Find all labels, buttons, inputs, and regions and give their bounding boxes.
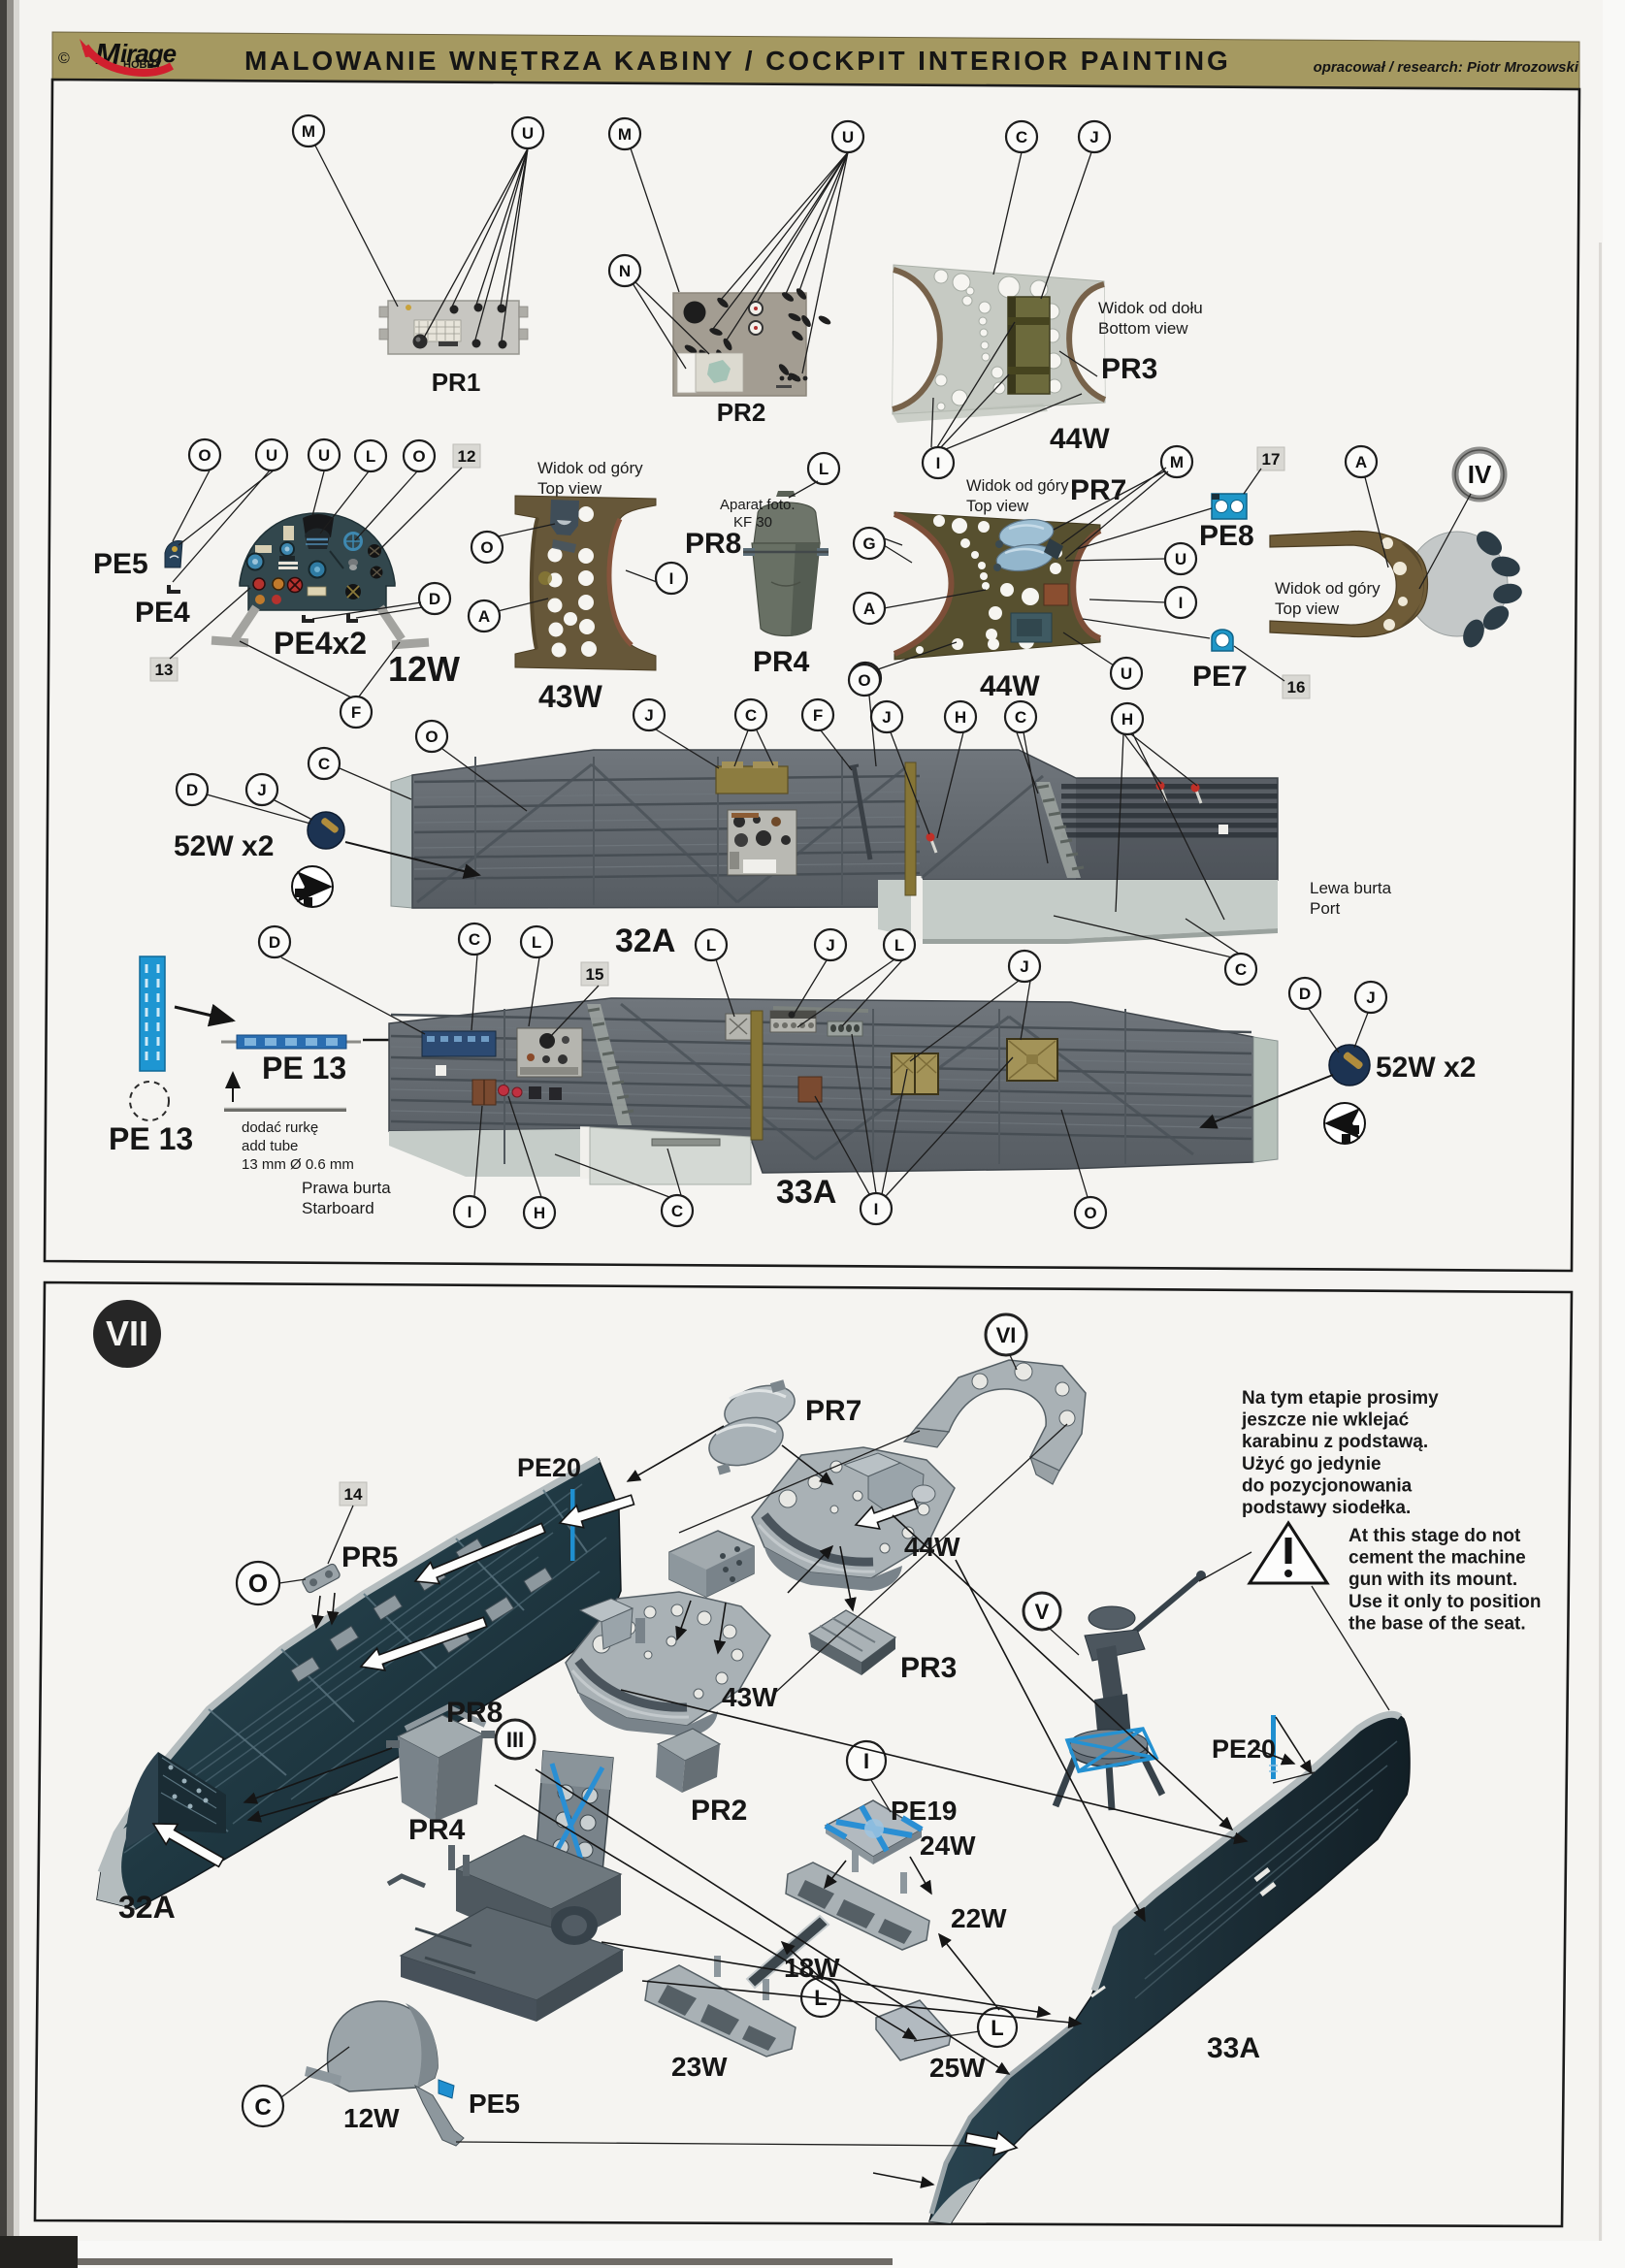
svg-text:VII: VII bbox=[106, 1313, 148, 1353]
svg-text:opracował / research: Piotr Mr: opracował / research: Piotr Mrozowski bbox=[1314, 59, 1579, 76]
svg-text:43W: 43W bbox=[538, 679, 603, 714]
svg-text:Na tym etapie prosimy: Na tym etapie prosimy bbox=[1242, 1388, 1439, 1409]
svg-text:J: J bbox=[644, 706, 653, 725]
svg-text:L: L bbox=[366, 447, 375, 466]
svg-text:C: C bbox=[1016, 128, 1027, 146]
svg-text:H: H bbox=[1121, 710, 1133, 729]
svg-text:PR3: PR3 bbox=[900, 1652, 957, 1684]
svg-text:U: U bbox=[266, 446, 277, 465]
svg-text:44W: 44W bbox=[1050, 423, 1110, 455]
svg-text:A: A bbox=[1355, 453, 1367, 471]
svg-text:33A: 33A bbox=[776, 1174, 836, 1211]
svg-text:12W: 12W bbox=[388, 649, 460, 689]
svg-text:PR8: PR8 bbox=[685, 528, 741, 560]
svg-text:23W: 23W bbox=[671, 2052, 728, 2082]
svg-text:C: C bbox=[318, 755, 330, 773]
svg-text:J: J bbox=[257, 781, 266, 799]
svg-text:44W: 44W bbox=[904, 1532, 960, 1562]
svg-text:©: © bbox=[58, 50, 70, 67]
svg-text:Lewa burta: Lewa burta bbox=[1310, 879, 1392, 897]
svg-text:Bottom view: Bottom view bbox=[1098, 319, 1188, 338]
svg-text:PE8: PE8 bbox=[1199, 520, 1254, 552]
svg-text:PE19: PE19 bbox=[891, 1796, 958, 1826]
svg-text:Starboard: Starboard bbox=[302, 1199, 374, 1217]
svg-text:PE4x2: PE4x2 bbox=[274, 626, 367, 661]
svg-text:Prawa burta: Prawa burta bbox=[302, 1179, 391, 1197]
svg-text:O: O bbox=[248, 1569, 268, 1598]
svg-text:MALOWANIE WNĘTRZA KABINY / COC: MALOWANIE WNĘTRZA KABINY / COCKPIT INTER… bbox=[244, 46, 1231, 76]
svg-text:M: M bbox=[618, 125, 632, 144]
svg-text:U: U bbox=[1175, 550, 1186, 568]
svg-text:O: O bbox=[480, 538, 493, 557]
svg-text:L: L bbox=[894, 936, 904, 955]
svg-text:Use it only to position: Use it only to position bbox=[1349, 1592, 1541, 1612]
svg-text:12W: 12W bbox=[343, 2103, 400, 2133]
svg-text:Użyć go jedynie: Użyć go jedynie bbox=[1242, 1454, 1381, 1474]
svg-text:L: L bbox=[991, 2016, 1003, 2040]
svg-text:C: C bbox=[671, 1202, 683, 1220]
svg-text:32A: 32A bbox=[615, 923, 675, 959]
svg-text:25W: 25W bbox=[929, 2053, 986, 2083]
svg-text:J: J bbox=[882, 708, 891, 727]
svg-text:44W: 44W bbox=[980, 670, 1040, 702]
svg-text:Widok od góry: Widok od góry bbox=[1275, 579, 1381, 598]
svg-text:J: J bbox=[826, 936, 834, 955]
svg-text:U: U bbox=[522, 124, 534, 143]
svg-text:podstawy siodełka.: podstawy siodełka. bbox=[1242, 1498, 1411, 1518]
svg-text:Widok od góry: Widok od góry bbox=[537, 459, 643, 477]
svg-text:PE20: PE20 bbox=[1212, 1734, 1276, 1764]
svg-text:PE20: PE20 bbox=[517, 1453, 581, 1482]
svg-text:cement the machine: cement the machine bbox=[1349, 1548, 1526, 1569]
svg-text:PE4: PE4 bbox=[135, 597, 190, 629]
svg-text:U: U bbox=[1121, 664, 1132, 683]
svg-text:PE 13: PE 13 bbox=[262, 1051, 346, 1085]
svg-text:U: U bbox=[842, 128, 854, 146]
svg-text:C: C bbox=[469, 930, 480, 949]
svg-text:III: III bbox=[506, 1728, 524, 1752]
svg-text:PR3: PR3 bbox=[1101, 353, 1157, 385]
svg-text:O: O bbox=[412, 447, 425, 466]
svg-text:C: C bbox=[1235, 960, 1247, 979]
svg-text:PR4: PR4 bbox=[753, 646, 810, 678]
svg-text:O: O bbox=[858, 671, 870, 690]
svg-text:Top view: Top view bbox=[966, 498, 1028, 515]
svg-text:Widok od góry: Widok od góry bbox=[966, 477, 1069, 495]
svg-text:PE5: PE5 bbox=[469, 2089, 520, 2119]
svg-text:do pozycjonowania: do pozycjonowania bbox=[1242, 1475, 1413, 1496]
svg-text:A: A bbox=[863, 599, 875, 618]
svg-text:L: L bbox=[819, 460, 829, 478]
svg-text:Widok od dołu: Widok od dołu bbox=[1098, 299, 1203, 317]
svg-text:16: 16 bbox=[1287, 678, 1306, 697]
svg-text:15: 15 bbox=[586, 965, 604, 984]
svg-text:PR4: PR4 bbox=[408, 1814, 466, 1846]
svg-text:C: C bbox=[1015, 708, 1026, 727]
svg-text:O: O bbox=[198, 446, 211, 465]
svg-text:I: I bbox=[468, 1203, 472, 1221]
svg-text:PE5: PE5 bbox=[93, 548, 148, 580]
svg-text:52W x2: 52W x2 bbox=[1376, 1052, 1476, 1084]
svg-text:L: L bbox=[532, 933, 541, 952]
svg-text:J: J bbox=[1089, 128, 1098, 146]
svg-text:43W: 43W bbox=[722, 1682, 778, 1712]
svg-text:Top view: Top view bbox=[537, 479, 602, 498]
svg-text:At this stage do not: At this stage do not bbox=[1349, 1526, 1521, 1546]
svg-text:52W x2: 52W x2 bbox=[174, 830, 274, 862]
svg-text:24W: 24W bbox=[920, 1831, 976, 1861]
svg-text:D: D bbox=[429, 590, 440, 608]
svg-text:17: 17 bbox=[1262, 450, 1281, 469]
svg-text:A: A bbox=[478, 607, 490, 626]
svg-text:32A: 32A bbox=[118, 1890, 176, 1925]
svg-text:gun with its mount.: gun with its mount. bbox=[1349, 1570, 1517, 1590]
svg-text:U: U bbox=[318, 446, 330, 465]
svg-text:PR7: PR7 bbox=[805, 1395, 861, 1427]
svg-text:I: I bbox=[874, 1200, 879, 1218]
svg-text:M: M bbox=[1170, 453, 1184, 471]
svg-text:PR1: PR1 bbox=[432, 368, 481, 397]
svg-text:Aparat foto.: Aparat foto. bbox=[720, 497, 796, 513]
svg-text:dodać rurkę: dodać rurkę bbox=[242, 1119, 318, 1136]
svg-text:O: O bbox=[1084, 1204, 1096, 1222]
svg-text:PE7: PE7 bbox=[1192, 661, 1248, 693]
svg-text:I: I bbox=[669, 569, 674, 588]
svg-text:F: F bbox=[351, 703, 361, 722]
svg-text:J: J bbox=[1020, 957, 1028, 976]
svg-text:G: G bbox=[862, 535, 875, 553]
svg-text:KF 30: KF 30 bbox=[733, 514, 772, 531]
svg-text:Port: Port bbox=[1310, 899, 1340, 918]
svg-text:I: I bbox=[863, 1749, 869, 1773]
svg-text:the base of the seat.: the base of the seat. bbox=[1349, 1613, 1526, 1634]
svg-text:H: H bbox=[534, 1204, 545, 1222]
svg-text:13: 13 bbox=[155, 661, 174, 679]
svg-text:14: 14 bbox=[344, 1485, 363, 1504]
svg-text:PR2: PR2 bbox=[691, 1795, 747, 1827]
svg-text:13 mm Ø 0.6 mm: 13 mm Ø 0.6 mm bbox=[242, 1156, 354, 1173]
svg-text:I: I bbox=[936, 454, 941, 472]
svg-text:J: J bbox=[1366, 988, 1375, 1007]
svg-text:PR7: PR7 bbox=[1070, 474, 1126, 506]
svg-text:D: D bbox=[186, 781, 198, 799]
svg-text:L: L bbox=[706, 936, 716, 955]
svg-text:D: D bbox=[1299, 985, 1311, 1003]
svg-text:karabinu z podstawą.: karabinu z podstawą. bbox=[1242, 1432, 1428, 1452]
svg-text:VI: VI bbox=[996, 1323, 1017, 1347]
svg-text:PR8: PR8 bbox=[446, 1697, 503, 1729]
svg-text:V: V bbox=[1035, 1600, 1050, 1624]
svg-text:Top view: Top view bbox=[1275, 599, 1340, 618]
svg-text:22W: 22W bbox=[951, 1903, 1007, 1933]
svg-text:O: O bbox=[425, 728, 438, 746]
svg-text:33A: 33A bbox=[1207, 2032, 1260, 2064]
svg-text:add tube: add tube bbox=[242, 1138, 298, 1154]
svg-text:D: D bbox=[269, 933, 280, 952]
svg-text:I: I bbox=[1179, 594, 1184, 612]
svg-text:H: H bbox=[955, 708, 966, 727]
svg-text:F: F bbox=[813, 706, 823, 725]
svg-text:C: C bbox=[745, 706, 757, 725]
svg-text:N: N bbox=[619, 262, 631, 280]
svg-text:PR5: PR5 bbox=[341, 1541, 398, 1573]
svg-text:IV: IV bbox=[1468, 460, 1492, 489]
svg-text:M: M bbox=[302, 122, 315, 141]
svg-text:jeszcze nie wklejać: jeszcze nie wklejać bbox=[1241, 1410, 1410, 1431]
svg-text:PR2: PR2 bbox=[717, 398, 766, 427]
svg-text:PE 13: PE 13 bbox=[109, 1121, 193, 1156]
svg-text:12: 12 bbox=[458, 447, 476, 466]
svg-text:C: C bbox=[254, 2094, 271, 2121]
